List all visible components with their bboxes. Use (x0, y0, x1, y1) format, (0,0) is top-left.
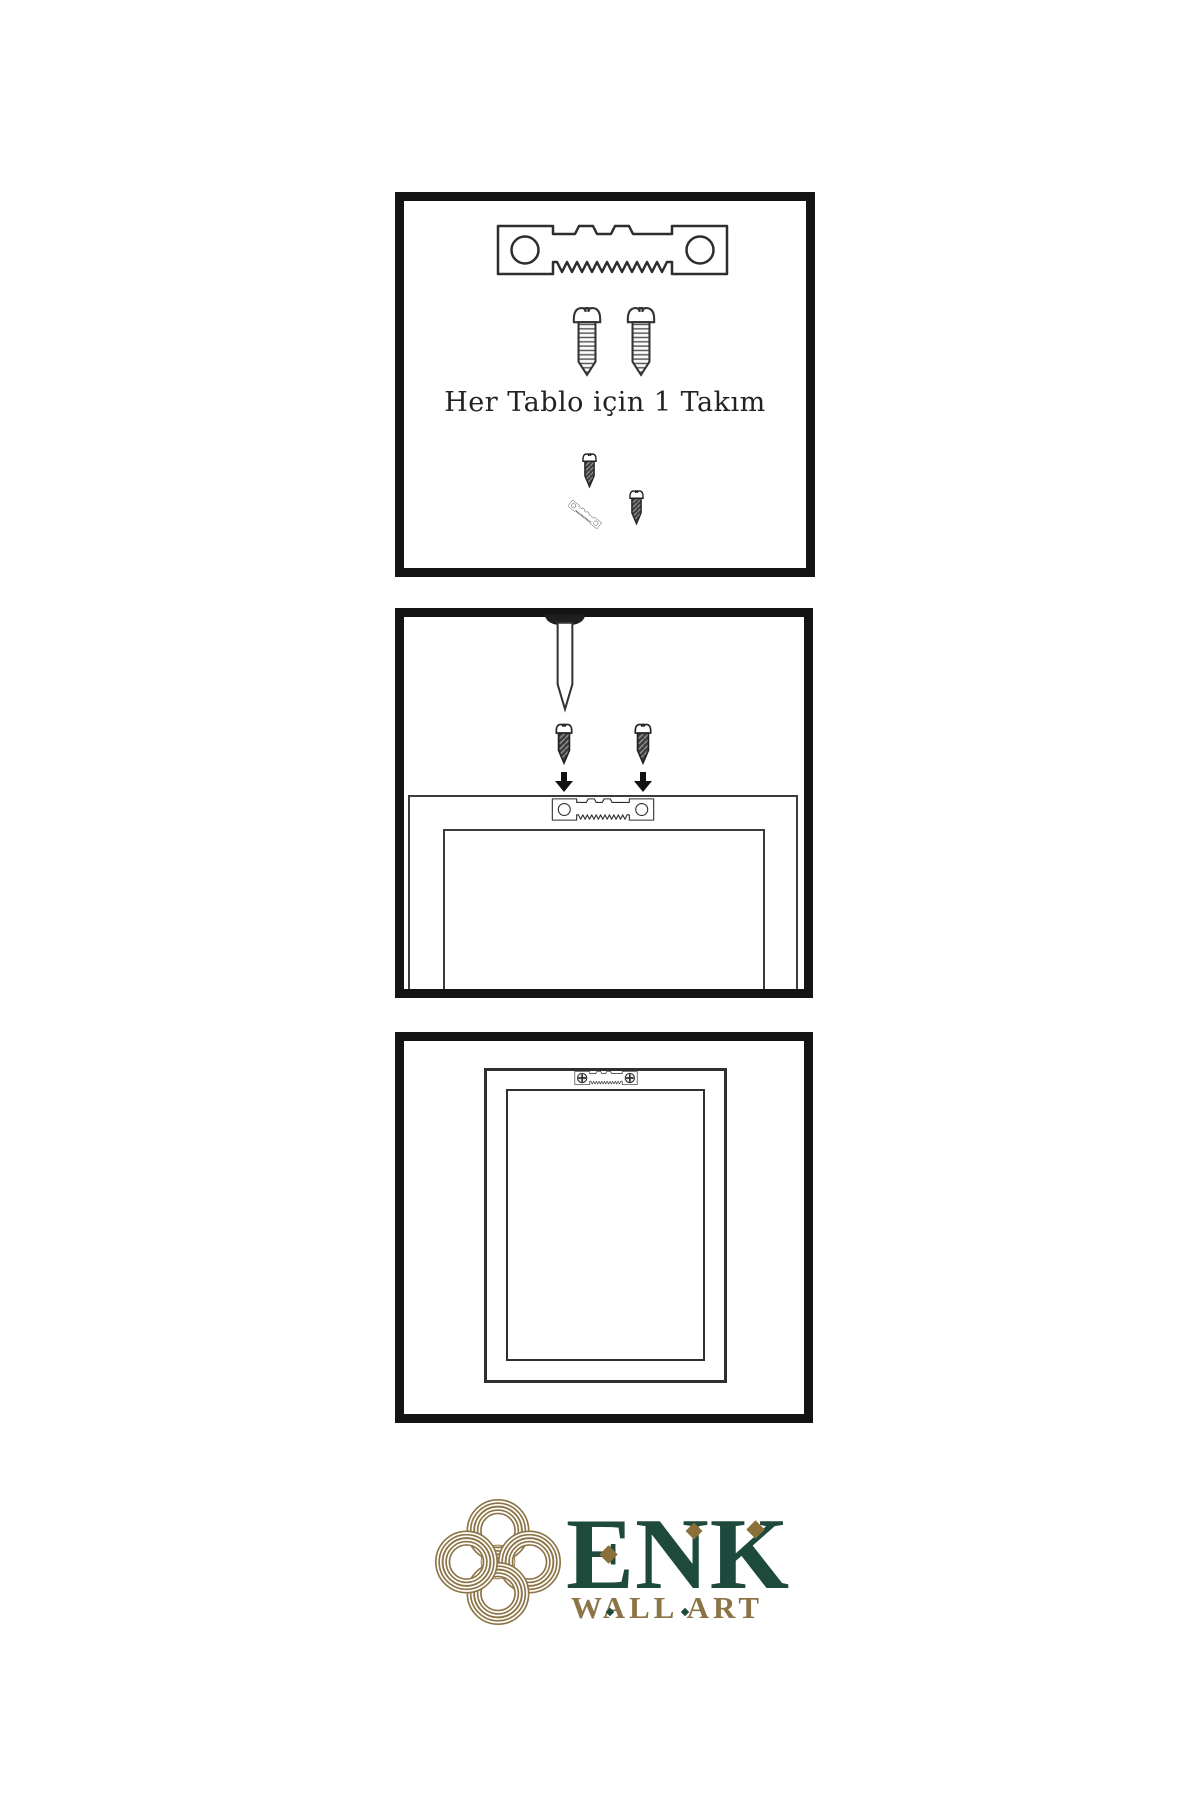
arrow-down-icon (634, 772, 652, 792)
picture-frame-inner-outline (506, 1089, 705, 1361)
mounted-sawtooth-hanger-icon (574, 1070, 638, 1086)
brand-tagline: WALL ART (571, 1592, 763, 1623)
screw-icon (625, 305, 657, 377)
sawtooth-hanger-icon (551, 797, 655, 822)
screw-icon (571, 305, 603, 377)
panel-attach-hanger (395, 608, 813, 998)
kit-caption: Her Tablo için 1 Takım (404, 387, 806, 418)
instruction-sheet: Her Tablo için 1 Takım (0, 0, 1200, 1800)
frame-back-inner-outline (443, 829, 765, 989)
small-screw-icon (628, 489, 645, 526)
sawtooth-hanger-icon (495, 222, 730, 278)
angled-sawtooth-hanger-icon (568, 461, 668, 566)
panel-hang-frame (395, 1032, 813, 1423)
wall-nail-icon (542, 614, 588, 716)
small-screw-icon (554, 721, 574, 767)
panel-hardware-kit: Her Tablo için 1 Takım (395, 192, 815, 577)
arrow-down-icon (555, 772, 573, 792)
knot-logo (435, 1496, 561, 1628)
small-screw-icon (633, 721, 653, 767)
